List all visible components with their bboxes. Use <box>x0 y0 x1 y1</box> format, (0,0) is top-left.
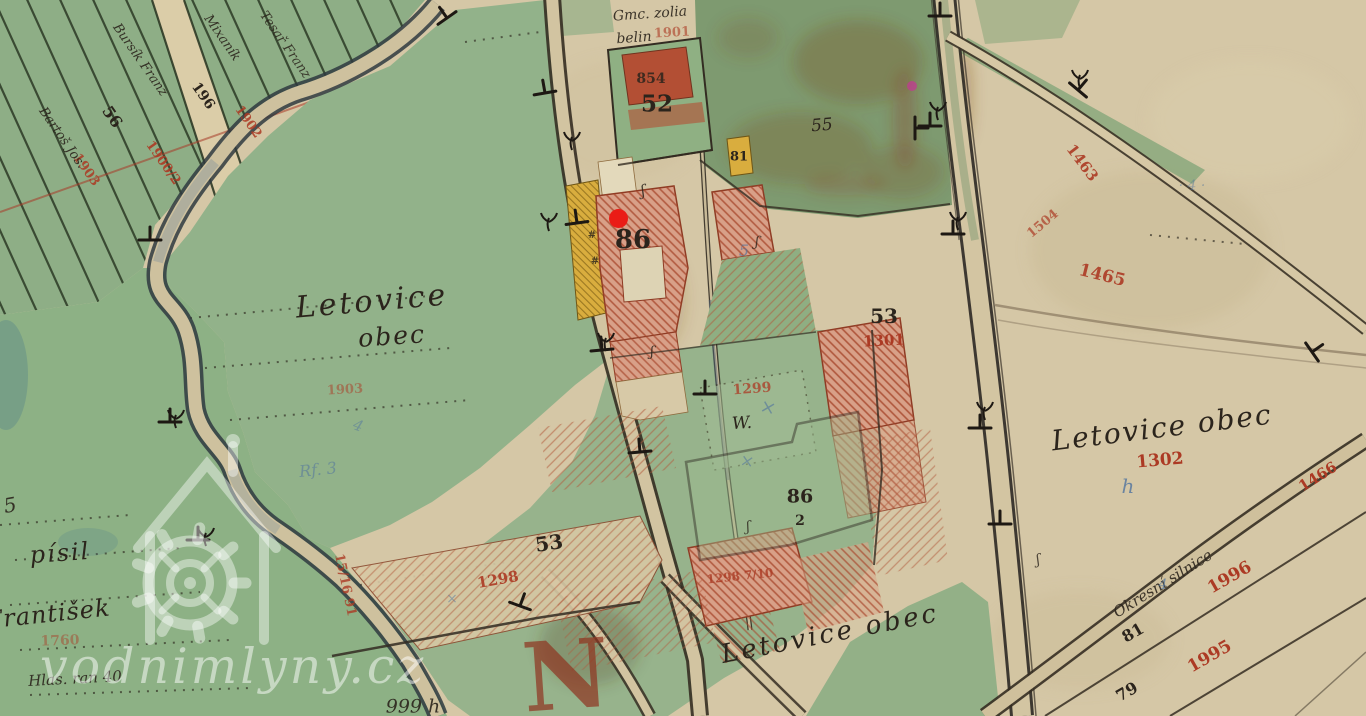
map-label: 1463 <box>1063 142 1100 184</box>
map-label: ʃ <box>1035 553 1041 567</box>
map-label: Mixaník <box>201 13 242 64</box>
map-label: 1298 7/10 <box>706 567 774 586</box>
map-label: 81 <box>730 151 748 164</box>
map-label: ʃ <box>754 235 759 249</box>
map-label: 53 <box>534 531 564 555</box>
map-label: 86 <box>615 227 651 253</box>
map-label: ʃ <box>650 345 654 359</box>
map-label: 1901 <box>654 26 691 41</box>
map-label: 1995 <box>1185 638 1234 676</box>
map-label: 79 <box>1113 680 1140 705</box>
map-label: František <box>0 596 112 633</box>
map-label: obec <box>357 321 426 351</box>
map-label: Bursík Franz <box>110 21 170 98</box>
map-label: × <box>739 452 756 471</box>
map-label: ʃ <box>640 183 647 198</box>
map-label: 1900/2 <box>143 139 182 187</box>
location-marker[interactable] <box>609 209 628 228</box>
map-label: # <box>588 231 596 241</box>
map-label: 53 <box>870 306 898 326</box>
map-label: 86 <box>787 488 813 507</box>
map-label: Gmc. zolia <box>612 4 687 23</box>
map-label: 1465 <box>1077 262 1127 290</box>
map-label: 1302 <box>1136 450 1185 471</box>
map-label: 1301 <box>863 332 905 349</box>
map-label: 81 <box>1119 621 1146 646</box>
map-label: 1903 <box>327 383 364 398</box>
map-label: Bartoš Jos. <box>36 105 87 171</box>
map-label: 1996 <box>1205 559 1254 597</box>
map-canvas: 86528548155531301531298862W.12991298 7/1… <box>0 0 1366 716</box>
map-label: 1504 <box>1025 207 1061 240</box>
map-labels-layer: 86528548155531301531298862W.12991298 7/1… <box>0 0 1366 716</box>
map-label: h <box>1122 476 1135 496</box>
map-label: × <box>758 397 778 419</box>
map-label: 55 <box>810 117 833 136</box>
map-label: písil <box>29 539 91 567</box>
map-label: 5 <box>2 494 18 516</box>
watermark-text: vodnimlyny.cz <box>40 638 426 695</box>
map-label: × <box>446 592 458 606</box>
map-label: Letovice <box>295 280 450 323</box>
map-label: 1902 <box>232 103 263 140</box>
map-label: Letovice obec <box>1050 401 1274 456</box>
map-label: Rf. 3 <box>298 460 337 480</box>
map-label: 4 <box>1159 578 1168 592</box>
map-label: N <box>519 626 612 716</box>
map-label: belin <box>616 30 652 46</box>
map-label: Letovice obec <box>719 600 941 668</box>
map-label: W. <box>731 415 752 433</box>
map-label: # <box>591 257 599 267</box>
map-label: Tesař Franz <box>257 9 313 81</box>
map-label: 52 <box>641 93 673 116</box>
map-label: 4 <box>351 417 365 434</box>
map-label: 854 <box>636 72 665 86</box>
map-label: 196 <box>189 80 217 112</box>
map-label: ʃ <box>745 520 750 534</box>
map-label: · 4 · <box>1179 179 1206 193</box>
map-label: 5 <box>739 243 749 259</box>
map-label: 15/16 91 <box>332 553 358 618</box>
map-label: 1298 <box>476 569 520 591</box>
map-label: 56 <box>99 103 125 130</box>
map-label: 999 h <box>386 698 441 716</box>
map-label: 2 <box>795 514 805 528</box>
map-label: 1466 <box>1296 460 1339 495</box>
